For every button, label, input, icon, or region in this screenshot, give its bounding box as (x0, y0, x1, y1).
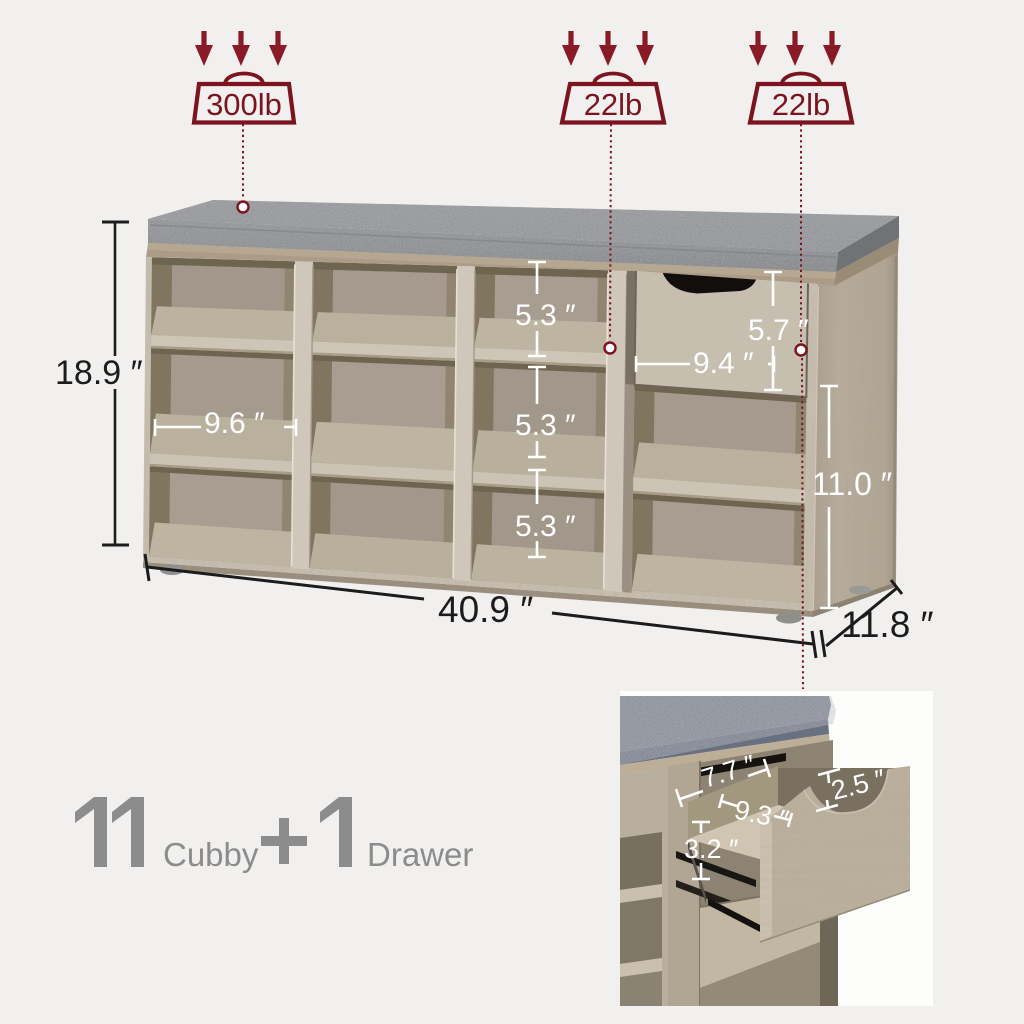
svg-text:11.0 ″: 11.0 ″ (812, 466, 892, 502)
svg-text:11.8 ″: 11.8 ″ (841, 604, 934, 645)
svg-text:9.4 ″: 9.4 ″ (693, 347, 754, 380)
svg-text:22lb: 22lb (772, 87, 831, 122)
svg-text:22lb: 22lb (584, 87, 643, 122)
svg-text:3.2 ″: 3.2 ″ (684, 834, 739, 864)
svg-text:5.3 ″: 5.3 ″ (515, 299, 576, 332)
svg-text:5.3 ″: 5.3 ″ (515, 510, 576, 543)
svg-text:18.9 ″: 18.9 ″ (55, 354, 143, 392)
svg-text:40.9 ″: 40.9 ″ (438, 589, 533, 630)
svg-text:9.6 ″: 9.6 ″ (204, 407, 265, 440)
svg-text:Drawer: Drawer (367, 836, 473, 873)
svg-text:5.7 ″: 5.7 ″ (748, 314, 809, 347)
svg-text:300lb: 300lb (206, 87, 282, 122)
svg-text:5.3 ″: 5.3 ″ (515, 409, 576, 442)
svg-text:Cubby: Cubby (163, 836, 259, 873)
